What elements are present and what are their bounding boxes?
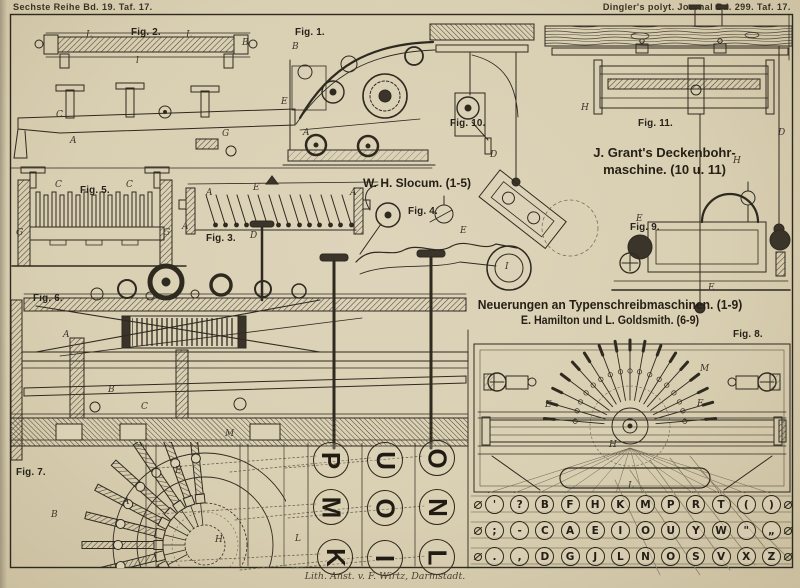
fig6-drawing bbox=[11, 221, 468, 460]
keyboard-row-1: '?BFHKMPRT() bbox=[474, 494, 792, 515]
keyboard-row-2-keys: ;-CAEIOUYW"„ bbox=[485, 521, 781, 540]
lithographer-credit: Lith. Anst. v. F. Wirtz, Darmstadt. bbox=[300, 571, 470, 582]
typewriter-key: J bbox=[586, 547, 605, 566]
keyboard-row-3-keys: .,DGJLNOSVXZ bbox=[485, 547, 781, 566]
typewriter-key: ) bbox=[762, 495, 781, 514]
typewriter-key: C bbox=[535, 521, 554, 540]
keyboard-row-3: .,DGJLNOSVXZ bbox=[474, 546, 792, 567]
typewriter-key: ( bbox=[737, 495, 756, 514]
fig3-drawing bbox=[179, 176, 378, 234]
typewriter-key: X bbox=[737, 547, 756, 566]
typewriter-key: ' bbox=[485, 495, 504, 514]
pivot-screw-icon bbox=[474, 553, 482, 561]
typewriter-key: ? bbox=[510, 495, 529, 514]
typewriter-key: N bbox=[636, 547, 655, 566]
typewriter-key: L bbox=[611, 547, 630, 566]
typewriter-key: I bbox=[611, 521, 630, 540]
caption-grant-line2: maschine. (10 u. 11) bbox=[572, 161, 757, 178]
typewriter-key: O bbox=[661, 547, 680, 566]
keyboard-row-2: ;-CAEIOUYW"„ bbox=[474, 520, 792, 541]
typewriter-key: U bbox=[661, 521, 680, 540]
typewriter-key: D bbox=[535, 547, 554, 566]
pivot-screw-icon bbox=[784, 553, 792, 561]
typewriter-key: T bbox=[712, 495, 731, 514]
typewriter-key: B bbox=[535, 495, 554, 514]
pivot-screw-icon bbox=[784, 527, 792, 535]
fig10-drawing bbox=[430, 24, 534, 186]
typewriter-key: G bbox=[561, 547, 580, 566]
keyboard-row-1-keys: '?BFHKMPRT() bbox=[485, 495, 781, 514]
typewriter-key: Y bbox=[686, 521, 705, 540]
fig2-drawing bbox=[14, 33, 295, 158]
typewriter-key: R bbox=[686, 495, 705, 514]
pivot-screw-icon bbox=[474, 527, 482, 535]
typewriter-key: . bbox=[485, 547, 504, 566]
typewriter-key: " bbox=[737, 521, 756, 540]
pivot-screw-icon bbox=[474, 501, 482, 509]
plate-subtitle: E. Hamilton und L. Goldsmith. (6-9) bbox=[466, 315, 754, 327]
typewriter-key: E bbox=[586, 521, 605, 540]
typewriter-key: O bbox=[636, 521, 655, 540]
typewriter-key: ; bbox=[485, 521, 504, 540]
fig1-drawing bbox=[283, 42, 435, 165]
typewriter-key: , bbox=[510, 547, 529, 566]
typewriter-key: M bbox=[636, 495, 655, 514]
fig7-drawing bbox=[82, 422, 297, 588]
caption-grant-line1: J. Grant's Deckenbohr- bbox=[572, 144, 757, 161]
caption-slocum: W. H. Slocum. (1-5) bbox=[352, 176, 482, 190]
typewriter-key: W bbox=[712, 521, 731, 540]
typewriter-key: F bbox=[561, 495, 580, 514]
typewriter-key: - bbox=[510, 521, 529, 540]
fig5-drawing bbox=[12, 167, 186, 266]
typewriter-key: V bbox=[712, 547, 731, 566]
typewriter-key: Z bbox=[762, 547, 781, 566]
typewriter-key: P bbox=[661, 495, 680, 514]
typewriter-key: „ bbox=[762, 521, 781, 540]
plate-page: Sechste Reihe Bd. 19. Taf. 17. Dingler's… bbox=[0, 0, 800, 588]
plate-frame-rules bbox=[10, 15, 793, 569]
fig9-drawing bbox=[612, 182, 790, 290]
typewriter-key: S bbox=[686, 547, 705, 566]
pivot-screw-icon bbox=[784, 501, 792, 509]
caption-grant: J. Grant's Deckenbohr- maschine. (10 u. … bbox=[572, 144, 757, 178]
typewriter-key: H bbox=[586, 495, 605, 514]
plate-title: Neuerungen an Typenschreibmaschinen. (1-… bbox=[466, 297, 754, 312]
typewriter-key: A bbox=[561, 521, 580, 540]
typewriter-key: K bbox=[611, 495, 630, 514]
